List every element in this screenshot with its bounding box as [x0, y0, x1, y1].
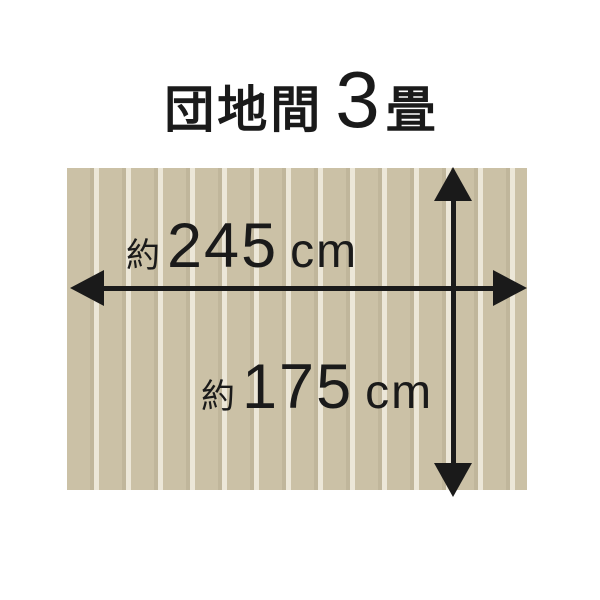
title-size-value: 3 — [335, 60, 380, 140]
arrow-down-head-icon — [434, 463, 472, 497]
size-diagram: 団地間 3 畳 約 245 cm 約 175 cm — [0, 0, 600, 600]
arrow-shaft — [451, 195, 456, 469]
height-approx-prefix: 約 — [201, 380, 235, 414]
height-unit: cm — [365, 369, 433, 417]
title-room-type: 団地間 — [164, 70, 323, 142]
width-approx-prefix: 約 — [126, 239, 160, 273]
height-dimension-label: 約 175 cm — [201, 356, 433, 419]
width-value: 245 — [167, 215, 278, 278]
title-size-unit: 畳 — [386, 70, 436, 142]
height-value: 175 — [242, 356, 353, 419]
height-arrow-icon — [434, 167, 472, 497]
width-unit: cm — [290, 228, 358, 276]
arrow-right-head-icon — [493, 270, 527, 306]
width-dimension-label: 約 245 cm — [126, 215, 358, 278]
page-title: 団地間 3 畳 — [0, 60, 600, 142]
